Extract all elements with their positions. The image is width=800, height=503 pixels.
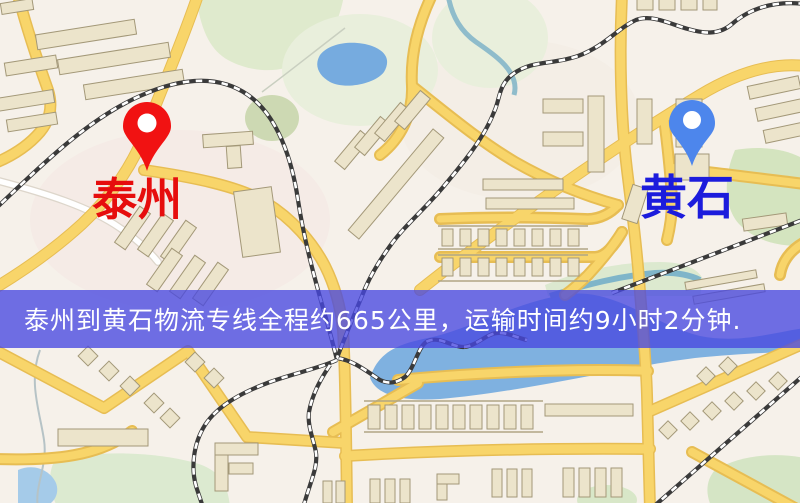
origin-label: 泰州 <box>92 177 182 222</box>
route-info-text: 泰州到黄石物流专线全程约665公里，运输时间约9小时2分钟. <box>0 301 741 337</box>
map-canvas[interactable]: 泰州 黄石 泰州到黄石物流专线全程约665公里，运输时间约9小时2分钟. <box>0 0 800 503</box>
route-info-banner: 泰州到黄石物流专线全程约665公里，运输时间约9小时2分钟. <box>0 290 800 348</box>
destination-label: 黄石 <box>640 175 734 222</box>
map-tiles <box>0 0 800 503</box>
